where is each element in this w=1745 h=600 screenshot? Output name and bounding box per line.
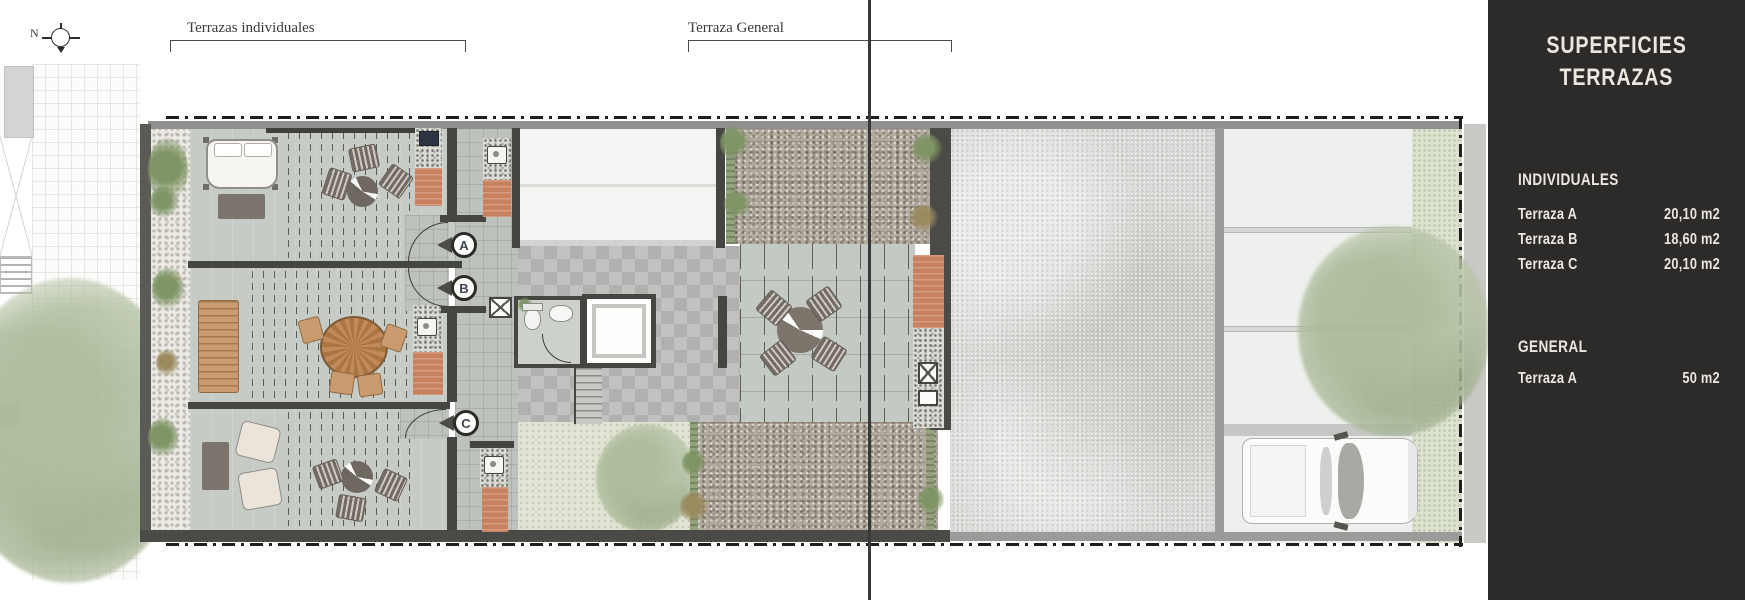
gravel-plant xyxy=(910,205,938,231)
surface-row-value: 18,60 m2 xyxy=(1664,231,1720,249)
interior-room xyxy=(518,128,724,246)
unit-marker-a-label: A xyxy=(459,238,468,253)
kitchenette-c-top xyxy=(482,487,508,532)
washer xyxy=(489,297,512,318)
surface-row-label: Terraza A xyxy=(1518,206,1577,224)
surface-row-label: Terraza A xyxy=(1518,370,1577,388)
section-heading-individuales: INDIVIDUALES xyxy=(1518,170,1644,190)
wall-top-rail xyxy=(266,128,415,133)
interior-room-line xyxy=(520,184,720,187)
stairs xyxy=(574,368,602,424)
surface-row: Terraza A 50 m2 xyxy=(1518,370,1720,388)
central-terrace-decking xyxy=(740,243,915,423)
car-bumper xyxy=(1408,442,1417,520)
car xyxy=(1242,438,1418,524)
gravel-plant xyxy=(720,126,748,160)
wall-bottom-dark xyxy=(140,530,950,542)
surface-row-value: 50 m2 xyxy=(1683,370,1721,388)
elevator-car xyxy=(592,304,646,358)
roof-valley xyxy=(0,136,32,256)
outdoor-kitchen-sink xyxy=(918,362,938,384)
outdoor-kitchen-top xyxy=(913,255,944,328)
compass-n-label: N xyxy=(30,26,39,41)
unit-marker-b-label: B xyxy=(459,281,468,296)
wall-terrace-right-2 xyxy=(447,306,457,402)
arrow-a-icon xyxy=(437,237,452,253)
surface-row-value: 20,10 m2 xyxy=(1664,206,1720,224)
arrow-b-icon xyxy=(437,280,452,296)
wall-room-left xyxy=(512,128,520,248)
car-bed xyxy=(1250,445,1306,517)
sidebar-title-line1: SUPERFICIES xyxy=(1546,30,1686,62)
gravel-plant xyxy=(682,450,706,476)
surface-row: Terraza B 18,60 m2 xyxy=(1518,231,1720,249)
surface-row-label: Terraza C xyxy=(1518,256,1578,274)
kitchenette-a-top xyxy=(415,168,442,206)
terrace-b-chair xyxy=(329,370,356,395)
terrace-a-table xyxy=(347,176,378,207)
kitchenette-b-sink-dot xyxy=(423,323,429,329)
daybed-pillow xyxy=(214,143,242,157)
toilet xyxy=(524,308,541,330)
boundary-dash-bottom xyxy=(166,543,1463,546)
wall-central-stub xyxy=(718,296,727,368)
terrace-c-armchair xyxy=(237,467,283,511)
gravel-plant xyxy=(680,492,708,522)
wall-bottom-light xyxy=(950,532,1462,541)
terrace-c-table xyxy=(341,461,373,493)
wall-stone-garage xyxy=(1215,128,1224,533)
terrace-b-table xyxy=(320,316,388,378)
lounger xyxy=(198,300,239,393)
planter-bush xyxy=(150,186,178,218)
car-rear-window xyxy=(1320,447,1332,515)
sidebar-superficies: SUPERFICIES TERRAZAS INDIVIDUALES Terraz… xyxy=(1488,0,1745,600)
kitchenette-corridor-top xyxy=(483,180,511,217)
label-terrazas-individuales: Terrazas individuales xyxy=(187,20,315,37)
floor-plan-page: A B C N Terrazas individuales Terraza Ge… xyxy=(0,0,1745,600)
wall-stub-k4 xyxy=(470,441,514,448)
compass-icon xyxy=(42,23,86,55)
section-heading-general: GENERAL xyxy=(1518,337,1605,357)
surface-row: Terraza C 20,10 m2 xyxy=(1518,256,1720,274)
sidebar-title-line2: TERRAZAS xyxy=(1560,62,1674,94)
wall-terrace-right-3 xyxy=(447,437,457,530)
wall-stub-b xyxy=(438,306,486,313)
compass: N xyxy=(26,22,86,56)
kitchenette-b-top xyxy=(413,352,443,395)
unit-marker-a: A xyxy=(451,232,477,258)
bed-post xyxy=(203,184,209,190)
page-split-line xyxy=(868,0,871,600)
outdoor-kitchen-hob xyxy=(918,390,938,406)
garden-shrub xyxy=(596,424,696,532)
planter-bush-low xyxy=(148,418,178,458)
gravel-plant xyxy=(912,134,942,164)
wall-stub-a xyxy=(440,215,486,222)
bathroom-sink xyxy=(549,305,573,322)
wall-divider-bc xyxy=(188,402,450,409)
unit-marker-c-label: C xyxy=(461,416,470,431)
car-windshield xyxy=(1338,443,1364,519)
gravel-planter-top xyxy=(730,128,932,244)
wall-terrace-right-1 xyxy=(447,128,457,222)
daybed-pillow xyxy=(244,143,272,157)
unit-marker-b: B xyxy=(451,275,477,301)
planter-fern xyxy=(152,268,184,310)
gravel-plant xyxy=(918,486,944,514)
toilet-tank xyxy=(522,303,543,311)
sidebar-title: SUPERFICIES TERRAZAS xyxy=(1488,30,1745,94)
boundary-dash-top xyxy=(166,116,1463,119)
hedge-bottom-right xyxy=(926,422,934,532)
surface-row-label: Terraza B xyxy=(1518,231,1578,249)
planter-grass xyxy=(156,350,178,376)
wall-divider-ab xyxy=(188,261,462,268)
terrace-a-rug xyxy=(218,194,265,219)
stone-courtyard xyxy=(950,128,1216,534)
label-terraza-general: Terraza General xyxy=(688,20,784,37)
kitchenette-a-sink xyxy=(419,131,439,146)
terrace-c-rug xyxy=(202,442,229,490)
tree-canopy-right xyxy=(1298,226,1490,436)
kitchenette-c-sink-dot xyxy=(490,461,496,467)
surface-row-value: 20,10 m2 xyxy=(1664,256,1720,274)
surface-row: Terraza A 20,10 m2 xyxy=(1518,206,1720,224)
kitchenette-corridor-sink-dot xyxy=(493,151,499,157)
gravel-planter-bottom xyxy=(690,422,938,532)
terrace-c-chair xyxy=(335,494,367,522)
arrow-c-icon xyxy=(439,415,454,431)
gravel-plant xyxy=(724,190,750,218)
bracket-individuales xyxy=(170,40,466,52)
roof-panel xyxy=(4,66,34,138)
terrace-b-chair xyxy=(357,372,384,397)
bracket-general xyxy=(688,40,952,52)
wall-left xyxy=(140,124,151,538)
unit-marker-c: C xyxy=(453,410,479,436)
